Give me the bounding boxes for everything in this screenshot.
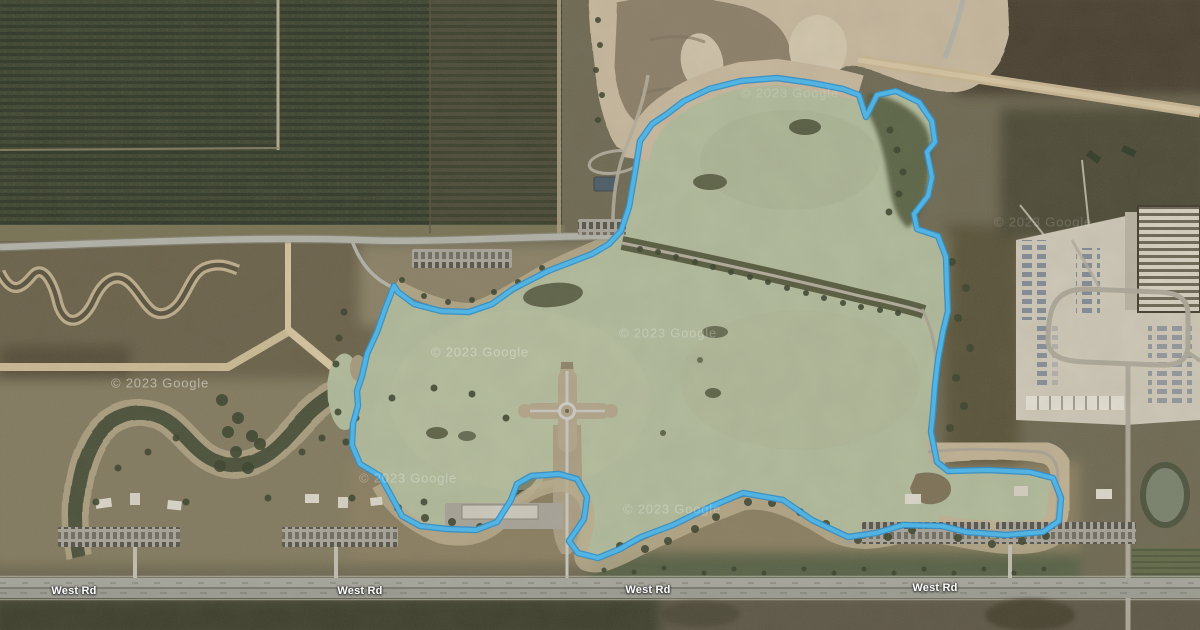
terrain-grain-overlay <box>0 0 1200 630</box>
satellite-imagery <box>0 0 1200 630</box>
satellite-map[interactable]: West RdWest RdWest RdWest Rd© 2023 Googl… <box>0 0 1200 630</box>
